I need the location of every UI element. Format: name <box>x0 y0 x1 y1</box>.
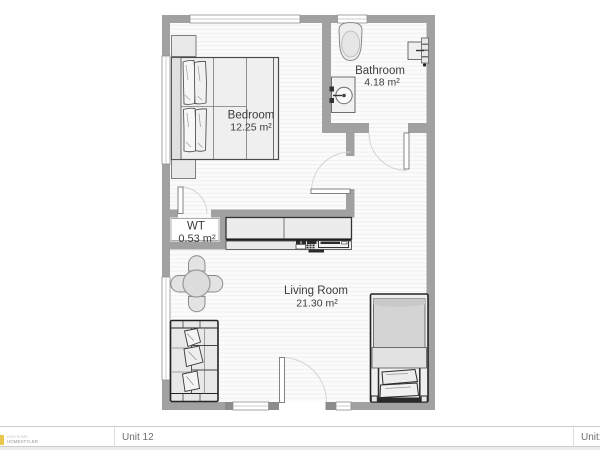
svg-text:Living Room: Living Room <box>284 285 348 297</box>
svg-text:12.25 m²: 12.25 m² <box>230 122 272 134</box>
svg-text:0.53 m²: 0.53 m² <box>178 233 216 245</box>
svg-text:WT: WT <box>187 220 205 232</box>
svg-text:4.18 m²: 4.18 m² <box>364 77 400 89</box>
svg-text:21.30 m²: 21.30 m² <box>296 298 338 310</box>
svg-text:Bedroom: Bedroom <box>228 110 275 122</box>
svg-text:Bathroom: Bathroom <box>355 65 405 77</box>
